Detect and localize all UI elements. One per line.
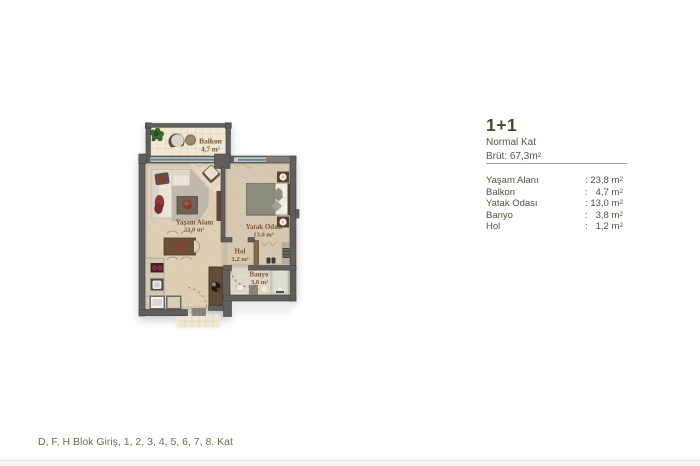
svg-text:23,8 m²: 23,8 m² [184,227,204,234]
svg-text:Yatak Odası: Yatak Odası [246,223,283,231]
svg-text:Banyo: Banyo [249,271,269,279]
svg-text:Yaşam Alanı: Yaşam Alanı [176,219,214,227]
svg-text:Balkon: Balkon [199,137,223,146]
svg-text:4,7 m²: 4,7 m² [201,146,219,154]
svg-text:13,0 m²: 13,0 m² [253,232,273,239]
svg-text:3,8 m²: 3,8 m² [251,279,268,286]
svg-text:Hol: Hol [235,248,246,256]
svg-text:1,2 m²: 1,2 m² [231,256,248,263]
